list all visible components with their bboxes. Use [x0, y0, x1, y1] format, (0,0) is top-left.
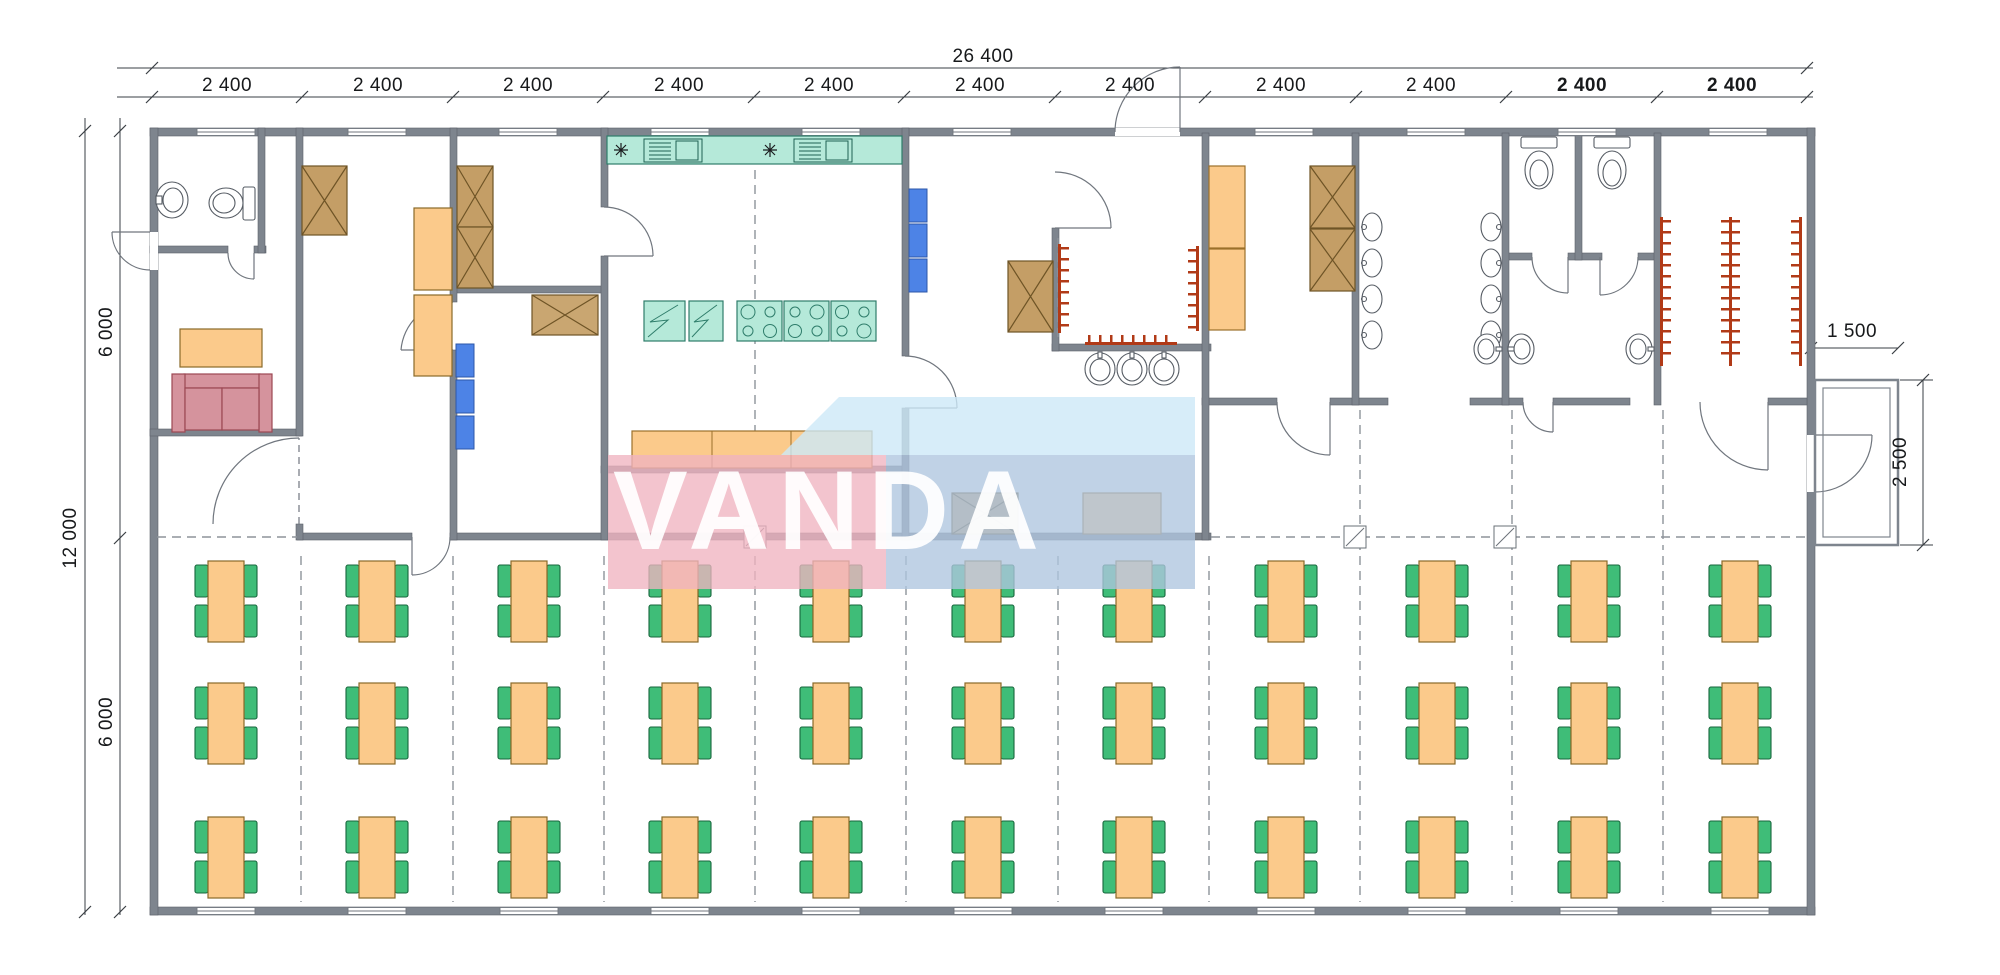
dining-table-unit: [1103, 683, 1165, 764]
dim-segment: 2 400: [804, 75, 854, 97]
serving-table: [1083, 493, 1161, 534]
dim-porch-depth: 2 500: [1890, 437, 1912, 487]
dim-segment: 2 400: [1707, 75, 1757, 97]
dining-table-unit: [649, 817, 711, 898]
wardrobe-icon: [1310, 166, 1355, 291]
dim-segment: 2 400: [955, 75, 1005, 97]
dining-table-unit: [1558, 561, 1620, 642]
dining-table-unit: [952, 817, 1014, 898]
chest-icon: [952, 493, 1018, 534]
toilet-icon: [1521, 137, 1557, 189]
urinal-icon: [1481, 213, 1502, 241]
dining-table-unit: [1709, 683, 1771, 764]
dim-segment: 2 400: [1105, 75, 1155, 97]
dim-segment: 2 400: [1256, 75, 1306, 97]
coat-rack-icon: [1085, 335, 1177, 345]
fridge-icon: [644, 301, 723, 341]
dim-segment: 2 400: [654, 75, 704, 97]
dim-segment: 2 400: [1557, 75, 1607, 97]
dining-table-unit: [346, 561, 408, 642]
bed-icon: [414, 208, 452, 376]
wardrobe-icon: [302, 166, 347, 235]
toilet-icon: [209, 187, 255, 220]
dining-table-unit: [952, 683, 1014, 764]
dim-segment: 6 000: [96, 697, 118, 747]
chair-row-blue: [456, 344, 474, 449]
urinal-icon: [1481, 249, 1502, 277]
dining-table-unit: [195, 817, 257, 898]
dining-table-unit: [1709, 817, 1771, 898]
dining-table-unit: [800, 683, 862, 764]
floor-plan-canvas: VANDA 26 400 2 400 2 400 2 400 2 400 2 4…: [0, 0, 2000, 975]
sink-icon: [156, 182, 188, 218]
dining-table-unit: [1255, 683, 1317, 764]
stove-icon: [737, 301, 876, 341]
coat-rack-icon: [1188, 246, 1199, 331]
dining-table-unit: [1406, 683, 1468, 764]
coat-rack-icon: [1058, 244, 1069, 333]
dining-table-unit: [195, 561, 257, 642]
dining-table-unit: [195, 683, 257, 764]
coat-rack-icons: [1058, 217, 1802, 366]
urinal-icon: [1362, 321, 1383, 349]
dining-table-unit: [1103, 561, 1165, 642]
dim-segment: 2 400: [202, 75, 252, 97]
dining-table-unit: [1709, 561, 1771, 642]
serving-counter: [632, 431, 872, 468]
washbasin-row: [1085, 352, 1179, 385]
dining-table-unit: [1255, 561, 1317, 642]
dim-segment: 2 400: [1406, 75, 1456, 97]
dining-table-unit: [800, 817, 862, 898]
chest-icon: [532, 295, 598, 335]
urinal-icon: [1362, 285, 1383, 313]
dining-tables: [195, 561, 1771, 898]
dining-table-unit: [649, 683, 711, 764]
dining-table-unit: [1558, 683, 1620, 764]
dining-table-unit: [346, 683, 408, 764]
floor-plan-drawing: [0, 0, 2000, 975]
urinal-icon: [1362, 213, 1383, 241]
dimension-ticks: [79, 62, 1929, 918]
dim-overall-height: 12 000: [60, 507, 82, 568]
porch: [1815, 380, 1898, 545]
urinal-icon: [1481, 285, 1502, 313]
dining-table-unit: [1406, 561, 1468, 642]
tall-cabinet: [1209, 166, 1245, 330]
dim-segment: 2 400: [353, 75, 403, 97]
urinal-icon: [1362, 249, 1383, 277]
dining-table-unit: [1558, 817, 1620, 898]
door-openings: [150, 128, 1815, 492]
dim-overall-width: 26 400: [952, 46, 1013, 68]
coat-rack-icon: [1721, 217, 1740, 366]
locker-column-blue: [909, 189, 927, 292]
dining-table-unit: [1406, 817, 1468, 898]
dining-table-unit: [1103, 817, 1165, 898]
coat-rack-icon: [1660, 217, 1671, 366]
toilet-icon: [1594, 137, 1630, 189]
wardrobe-icon: [1008, 261, 1053, 332]
coat-rack-icon: [1791, 217, 1802, 366]
dining-table-unit: [346, 817, 408, 898]
urinal-columns: [1362, 213, 1502, 349]
sofa-icon: [172, 374, 272, 432]
dining-table-unit: [952, 561, 1014, 642]
dining-table-unit: [498, 683, 560, 764]
dining-table-unit: [498, 561, 560, 642]
kitchen-counter: [607, 136, 902, 164]
dim-segment: 2 400: [503, 75, 553, 97]
dim-segment: 6 000: [96, 307, 118, 357]
dining-table-unit: [800, 561, 862, 642]
lounge-table: [180, 329, 262, 367]
wardrobe-icon: [457, 166, 493, 288]
dining-table-unit: [498, 817, 560, 898]
dining-table-unit: [649, 561, 711, 642]
dining-table-unit: [1255, 817, 1317, 898]
dim-porch-width: 1 500: [1827, 321, 1877, 343]
